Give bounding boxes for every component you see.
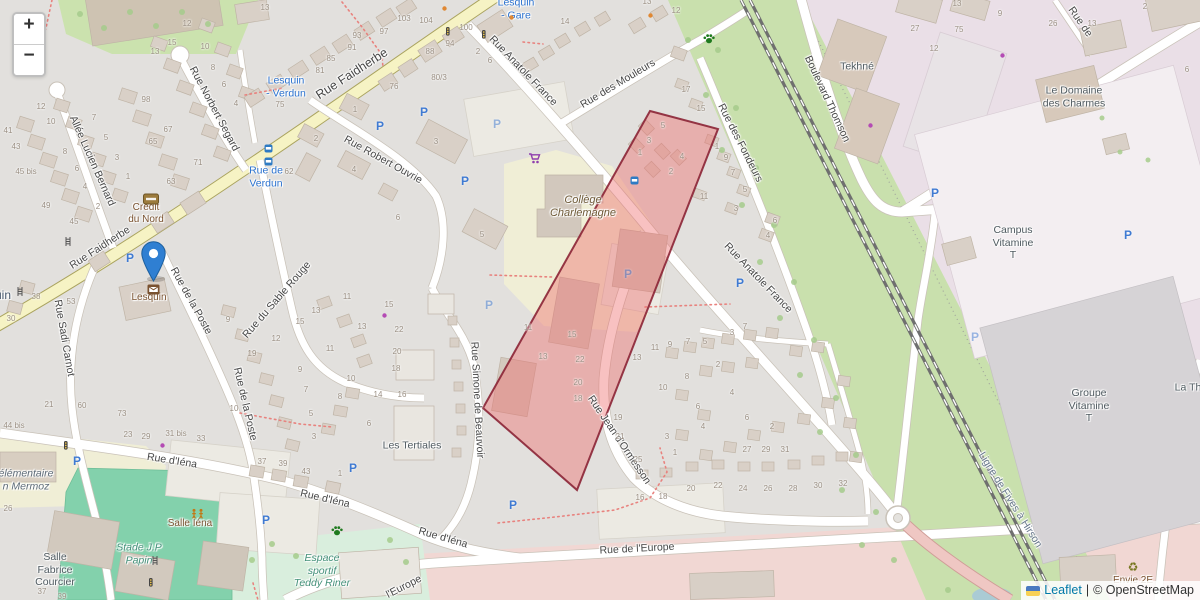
osm-attribution-text: © OpenStreetMap (1093, 581, 1194, 600)
map-marker[interactable] (141, 241, 166, 282)
attribution-bar: Leaflet | © OpenStreetMap (1021, 581, 1200, 600)
zoom-out-button[interactable]: − (14, 45, 44, 75)
zoom-in-button[interactable]: + (14, 14, 44, 45)
attribution-separator: | (1086, 581, 1089, 600)
map-canvas[interactable]: Rue FaidherbeRue FaidherbeRue Anatole Fr… (0, 0, 1200, 600)
ukraine-flag-icon (1026, 586, 1040, 596)
zoom-control: + − (12, 12, 46, 77)
leaflet-link[interactable]: Leaflet (1044, 581, 1082, 600)
